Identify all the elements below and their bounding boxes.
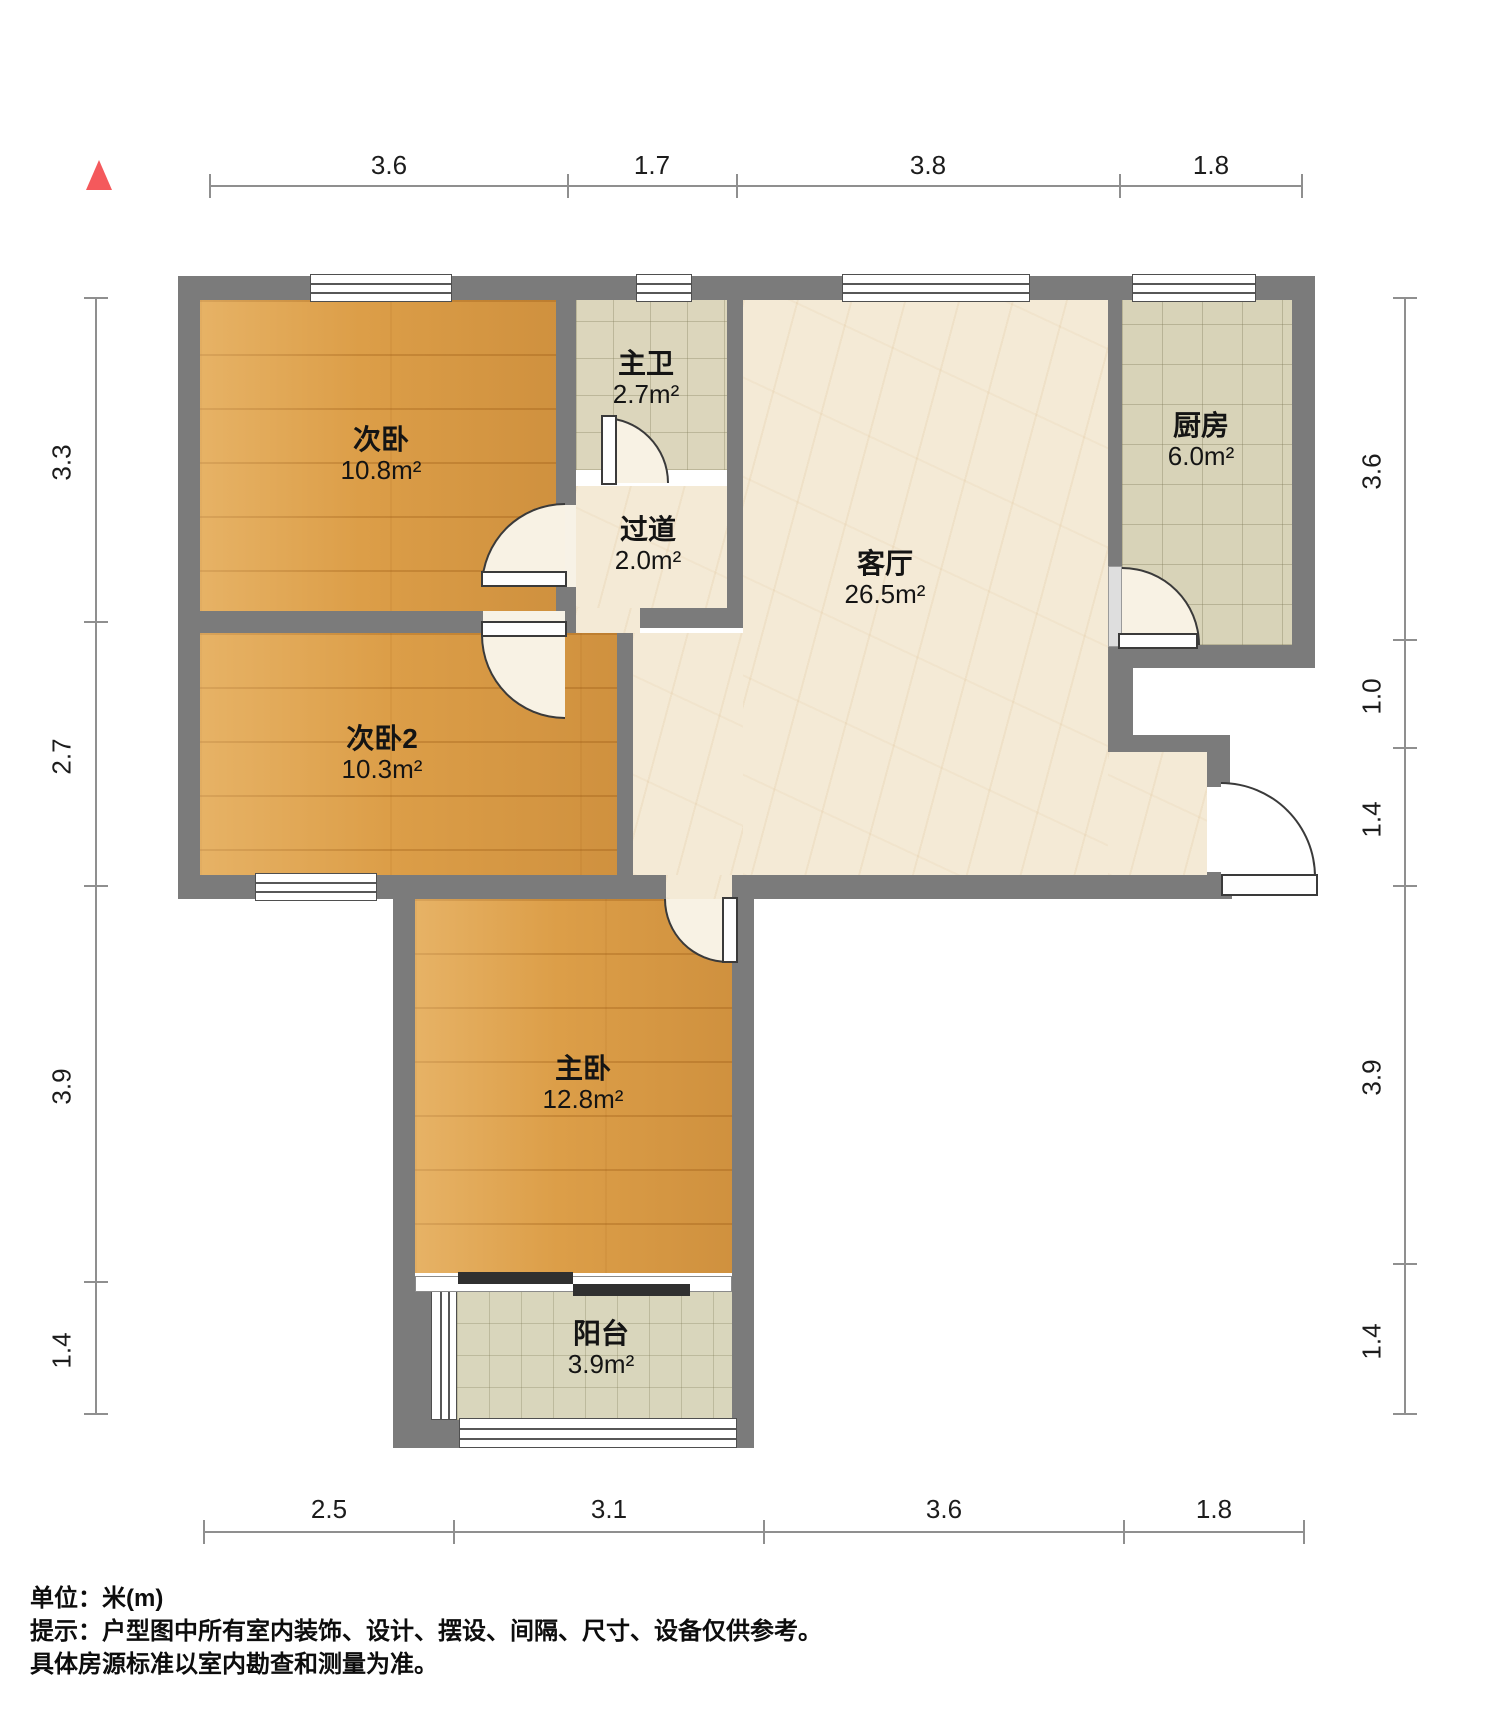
dimension-label: 3.6 bbox=[904, 1494, 984, 1525]
wall bbox=[393, 875, 415, 1292]
dimension-label: 3.3 bbox=[47, 423, 78, 503]
sliding-door-panel-icon bbox=[573, 1284, 690, 1296]
room-floor-hallway bbox=[576, 608, 640, 633]
dimension-label: 3.9 bbox=[1357, 1038, 1388, 1118]
room-name: 主卫 bbox=[613, 348, 679, 379]
dimension-label: 1.7 bbox=[612, 150, 692, 181]
dimension-label: 1.4 bbox=[47, 1311, 78, 1391]
dimension-label: 1.4 bbox=[1357, 1302, 1388, 1382]
dimension-tick bbox=[84, 885, 108, 887]
dimension-label: 1.4 bbox=[1357, 780, 1388, 860]
window-icon bbox=[431, 1290, 457, 1420]
wall bbox=[178, 875, 667, 899]
window-icon bbox=[459, 1418, 737, 1448]
unit-note: 单位：米(m) bbox=[30, 1582, 822, 1615]
dimension-label: 1.8 bbox=[1174, 1494, 1254, 1525]
room-area: 26.5m² bbox=[845, 579, 926, 610]
entry-door-leaf-icon bbox=[1221, 874, 1318, 896]
room-name: 过道 bbox=[615, 514, 681, 545]
tip-note-line2: 具体房源标准以室内勘查和测量为准。 bbox=[30, 1648, 822, 1681]
room-floor-livingroom bbox=[633, 633, 745, 875]
dimension-tick bbox=[1393, 1413, 1417, 1415]
room-area: 12.8m² bbox=[543, 1084, 624, 1115]
door-leaf-icon bbox=[1118, 633, 1198, 649]
dimension-tick bbox=[567, 174, 569, 198]
dimension-tick bbox=[1303, 1520, 1305, 1544]
dimension-tick bbox=[1393, 885, 1417, 887]
room-name: 次卧 bbox=[341, 424, 422, 455]
wall bbox=[435, 1420, 459, 1448]
door-threshold bbox=[666, 875, 732, 899]
dimension-label: 3.1 bbox=[569, 1494, 649, 1525]
wall bbox=[393, 1292, 435, 1448]
dimension-tick bbox=[84, 1281, 108, 1283]
dimension-label: 1.0 bbox=[1357, 657, 1388, 737]
dimension-tick bbox=[1393, 639, 1417, 641]
room-area: 2.7m² bbox=[613, 379, 679, 410]
room-label-master-bedroom: 主卧 12.8m² bbox=[543, 1053, 624, 1115]
entry-door-swing-icon bbox=[1221, 782, 1316, 877]
room-area: 10.8m² bbox=[341, 455, 422, 486]
dimension-label: 3.6 bbox=[1357, 432, 1388, 512]
wall bbox=[1292, 276, 1315, 668]
dimension-tick bbox=[209, 174, 211, 198]
window-icon bbox=[636, 274, 692, 302]
dimension-tick bbox=[1119, 174, 1121, 198]
footnotes: 单位：米(m) 提示：户型图中所有室内装饰、设计、摆设、间隔、尺寸、设备仅供参考… bbox=[30, 1582, 822, 1681]
door-leaf-icon bbox=[481, 571, 567, 587]
dimension-tick bbox=[1123, 1520, 1125, 1544]
room-label-hallway: 过道 2.0m² bbox=[615, 514, 681, 576]
north-arrow-icon bbox=[86, 160, 112, 190]
dimension-tick bbox=[1393, 297, 1417, 299]
sliding-door-panel-icon bbox=[458, 1272, 573, 1284]
floorplan-canvas: 次卧 10.8m² 主卫 2.7m² 过道 2.0m² 客厅 26.5m² 厨房… bbox=[0, 0, 1504, 1722]
room-label-livingroom: 客厅 26.5m² bbox=[845, 548, 926, 610]
room-area: 6.0m² bbox=[1168, 441, 1234, 472]
dimension-label: 1.8 bbox=[1171, 150, 1251, 181]
room-label-bedroom2: 次卧 10.8m² bbox=[341, 424, 422, 486]
door-leaf-icon bbox=[601, 415, 617, 485]
window-icon bbox=[842, 274, 1030, 302]
window-icon bbox=[1132, 274, 1256, 302]
room-name: 次卧2 bbox=[342, 723, 423, 754]
dimension-label: 3.9 bbox=[47, 1047, 78, 1127]
window-icon bbox=[255, 873, 377, 901]
wall bbox=[556, 300, 576, 505]
dimension-tick bbox=[1393, 747, 1417, 749]
wall bbox=[730, 875, 1232, 899]
room-name: 客厅 bbox=[845, 548, 926, 579]
dimension-tick bbox=[84, 621, 108, 623]
room-area: 3.9m² bbox=[568, 1349, 634, 1380]
dimension-line-right bbox=[1404, 298, 1406, 1414]
wall bbox=[178, 276, 200, 898]
room-area: 10.3m² bbox=[342, 754, 423, 785]
wall bbox=[727, 300, 743, 628]
window-icon bbox=[310, 274, 452, 302]
dimension-label: 3.8 bbox=[888, 150, 968, 181]
dimension-line-top bbox=[210, 185, 1302, 187]
door-leaf-icon bbox=[481, 621, 567, 637]
room-label-kitchen: 厨房 6.0m² bbox=[1168, 410, 1234, 472]
wall bbox=[1207, 747, 1230, 787]
room-label-balcony: 阳台 3.9m² bbox=[568, 1318, 634, 1380]
room-name: 主卧 bbox=[543, 1053, 624, 1084]
wall bbox=[1108, 300, 1122, 566]
room-area: 2.0m² bbox=[615, 545, 681, 576]
dimension-tick bbox=[1301, 174, 1303, 198]
room-name: 阳台 bbox=[568, 1318, 634, 1349]
dimension-tick bbox=[763, 1520, 765, 1544]
dimension-line-left bbox=[95, 298, 97, 1414]
room-floor-livingroom bbox=[1108, 752, 1207, 875]
wall bbox=[640, 608, 743, 628]
room-label-bathroom: 主卫 2.7m² bbox=[613, 348, 679, 410]
dimension-tick bbox=[1393, 1263, 1417, 1265]
room-label-bedroom3: 次卧2 10.3m² bbox=[342, 723, 423, 785]
dimension-line-bottom bbox=[204, 1531, 1304, 1533]
room-name: 厨房 bbox=[1168, 410, 1234, 441]
dimension-label: 2.5 bbox=[289, 1494, 369, 1525]
wall bbox=[617, 633, 633, 877]
dimension-tick bbox=[84, 1413, 108, 1415]
dimension-label: 2.7 bbox=[47, 717, 78, 797]
dimension-tick bbox=[453, 1520, 455, 1544]
tip-note-line1: 提示：户型图中所有室内装饰、设计、摆设、间隔、尺寸、设备仅供参考。 bbox=[30, 1615, 822, 1648]
dimension-tick bbox=[736, 174, 738, 198]
wall bbox=[195, 611, 483, 633]
dimension-tick bbox=[84, 297, 108, 299]
dimension-label: 3.6 bbox=[349, 150, 429, 181]
dimension-tick bbox=[203, 1520, 205, 1544]
door-leaf-icon bbox=[722, 897, 738, 963]
